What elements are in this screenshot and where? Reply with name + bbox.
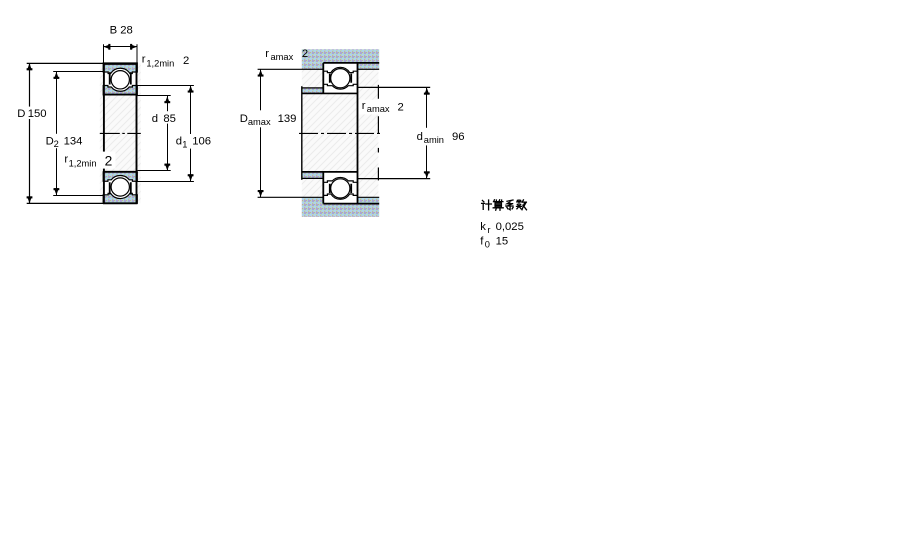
svg-text:amax: amax bbox=[271, 52, 294, 62]
svg-text:139: 139 bbox=[278, 113, 297, 125]
svg-text:amax: amax bbox=[248, 117, 271, 127]
svg-text:106: 106 bbox=[192, 136, 211, 148]
svg-text:85: 85 bbox=[163, 113, 176, 125]
svg-text:150: 150 bbox=[28, 108, 47, 120]
svg-text:amin: amin bbox=[424, 135, 444, 145]
svg-text:d: d bbox=[417, 131, 423, 143]
svg-text:15: 15 bbox=[496, 236, 509, 248]
svg-text:amax: amax bbox=[367, 104, 390, 114]
svg-text:2: 2 bbox=[302, 48, 308, 60]
svg-text:D: D bbox=[240, 113, 248, 125]
svg-text:r: r bbox=[142, 54, 146, 66]
svg-text:2: 2 bbox=[105, 154, 113, 169]
svg-text:r: r bbox=[487, 225, 490, 235]
svg-text:0: 0 bbox=[485, 240, 490, 250]
svg-text:r: r bbox=[265, 48, 269, 60]
svg-text:D: D bbox=[17, 108, 25, 120]
svg-text:d: d bbox=[176, 136, 182, 148]
svg-text:k: k bbox=[480, 221, 486, 233]
svg-text:1,2min: 1,2min bbox=[69, 158, 97, 168]
svg-text:96: 96 bbox=[452, 131, 465, 143]
svg-text:f: f bbox=[480, 236, 484, 248]
svg-text:D: D bbox=[46, 135, 54, 147]
svg-text:B 28: B 28 bbox=[110, 24, 133, 36]
svg-text:0,025: 0,025 bbox=[496, 221, 524, 233]
svg-text:2: 2 bbox=[398, 101, 404, 113]
svg-text:2: 2 bbox=[183, 55, 189, 67]
svg-text:2: 2 bbox=[54, 139, 59, 149]
svg-text:1: 1 bbox=[182, 140, 187, 150]
svg-text:134: 134 bbox=[64, 135, 83, 147]
svg-text:1,2min: 1,2min bbox=[146, 58, 174, 68]
svg-text:r: r bbox=[362, 100, 366, 112]
svg-text:d: d bbox=[152, 113, 158, 125]
